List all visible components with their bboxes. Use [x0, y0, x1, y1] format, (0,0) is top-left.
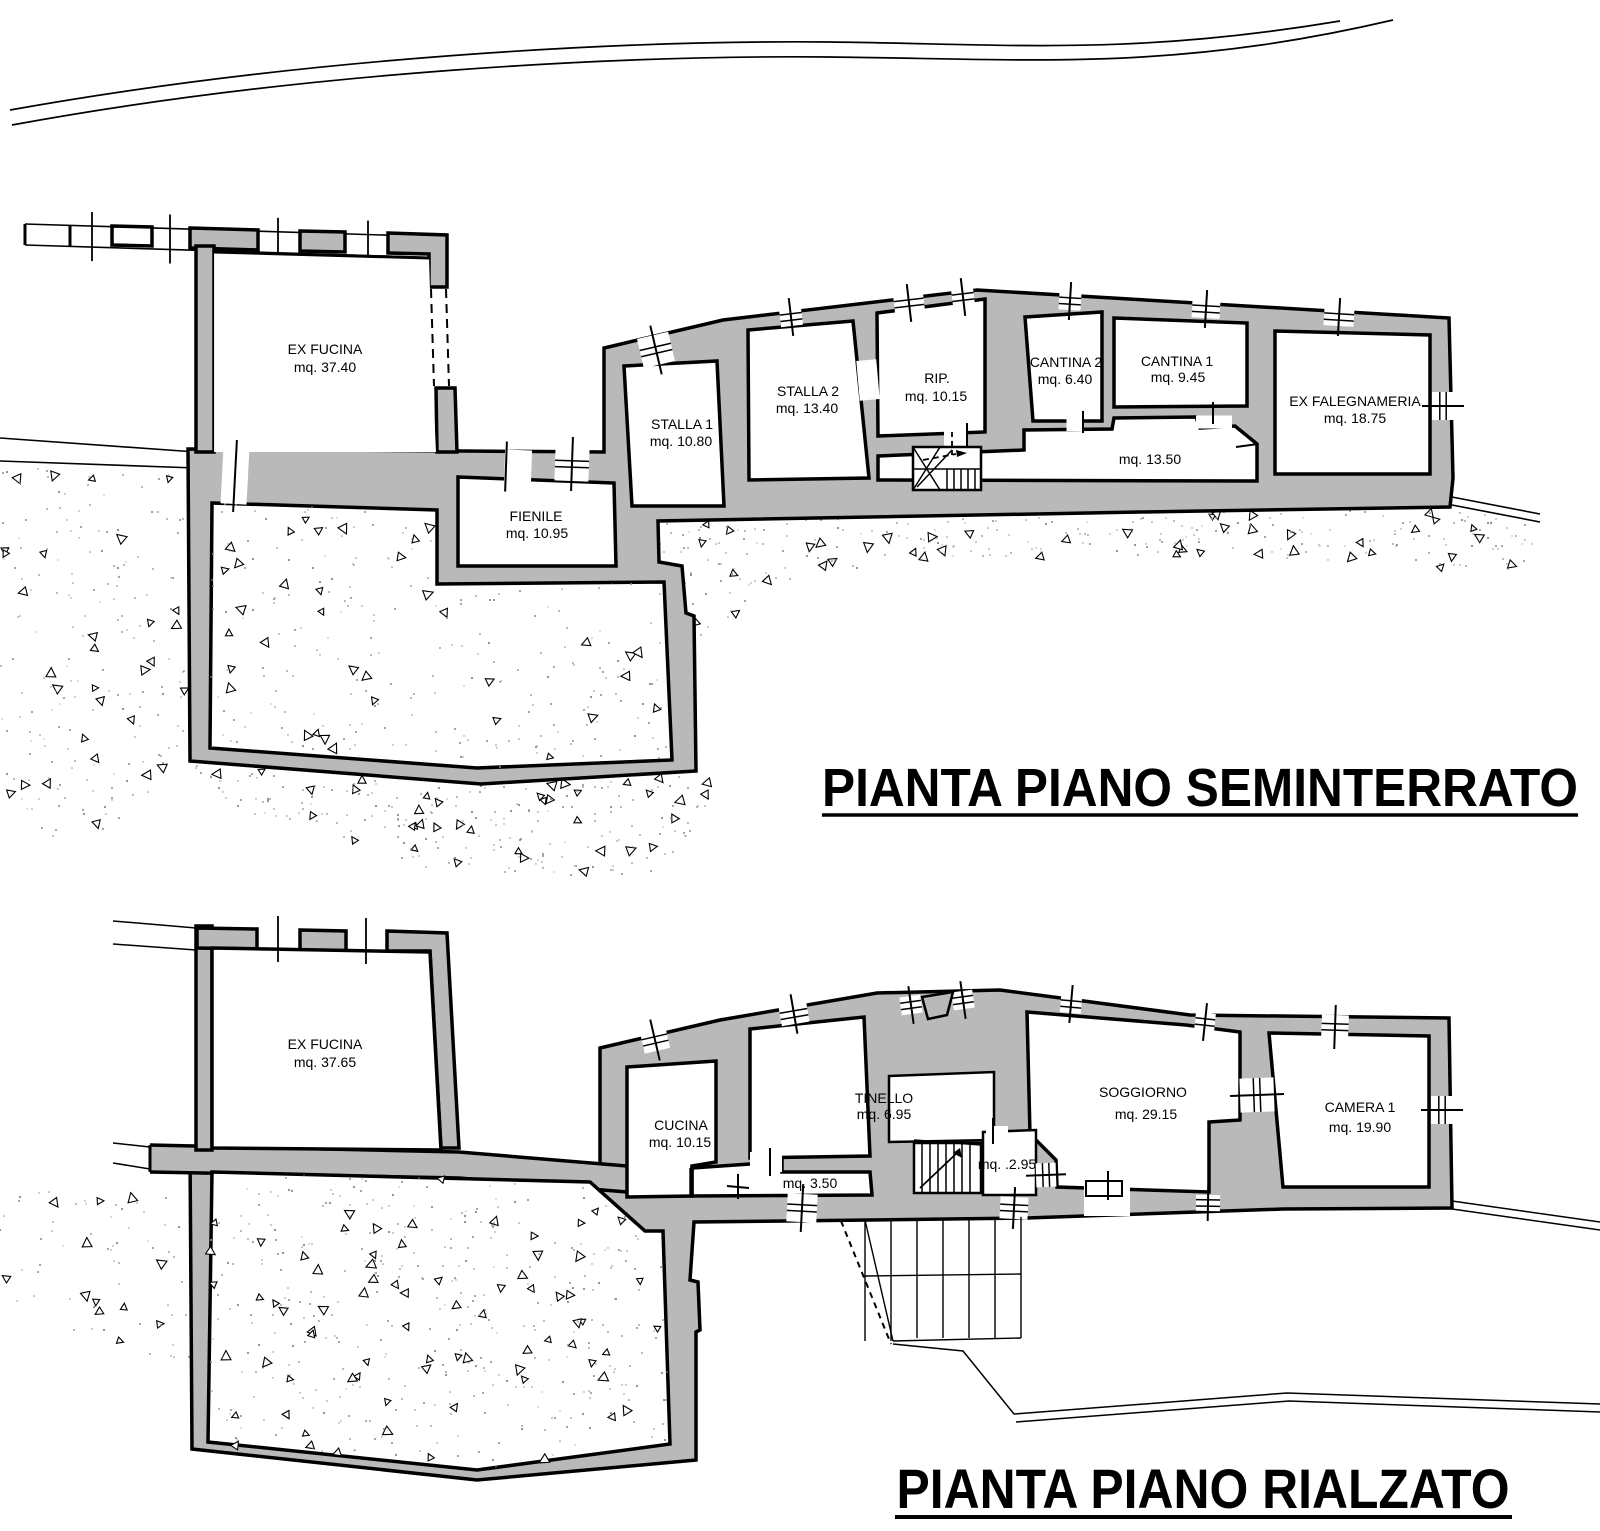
svg-text:mq. 37.65: mq. 37.65 — [294, 1054, 356, 1070]
svg-text:EX FUCINA: EX FUCINA — [288, 1036, 363, 1052]
svg-text:RIP.: RIP. — [924, 370, 949, 386]
svg-text:mq. 18.75: mq. 18.75 — [1324, 410, 1386, 426]
svg-text:mq. 10.95: mq. 10.95 — [506, 525, 568, 541]
svg-text:mq. 6.95: mq. 6.95 — [857, 1106, 912, 1122]
svg-text:CANTINA 1: CANTINA 1 — [1141, 353, 1214, 369]
svg-text:mq. 3.50: mq. 3.50 — [783, 1175, 838, 1191]
svg-text:mq. 13.50: mq. 13.50 — [1119, 451, 1181, 467]
svg-text:EX FUCINA: EX FUCINA — [288, 341, 363, 357]
svg-text:CAMERA 1: CAMERA 1 — [1325, 1099, 1396, 1115]
svg-text:PIANTA PIANO RIALZATO: PIANTA PIANO RIALZATO — [897, 1457, 1510, 1520]
svg-text:mq. 6.40: mq. 6.40 — [1038, 371, 1093, 387]
svg-text:PIANTA PIANO SEMINTERRATO: PIANTA PIANO SEMINTERRATO — [822, 758, 1578, 818]
svg-text:mq. 29.15: mq. 29.15 — [1115, 1106, 1177, 1122]
svg-text:FIENILE: FIENILE — [510, 508, 563, 524]
svg-text:STALLA 1: STALLA 1 — [651, 416, 713, 432]
svg-text:CUCINA: CUCINA — [654, 1117, 708, 1133]
svg-text:mq. .2.95: mq. .2.95 — [978, 1156, 1037, 1172]
svg-text:mq. 10.80: mq. 10.80 — [650, 433, 712, 449]
svg-text:mq. 37.40: mq. 37.40 — [294, 359, 356, 375]
svg-text:mq. 10.15: mq. 10.15 — [905, 388, 967, 404]
svg-text:mq. 9.45: mq. 9.45 — [1151, 369, 1206, 385]
svg-text:mq. 13.40: mq. 13.40 — [776, 400, 838, 416]
svg-text:TINELLO: TINELLO — [855, 1090, 913, 1106]
svg-text:mq. 10.15: mq. 10.15 — [649, 1134, 711, 1150]
svg-text:STALLA 2: STALLA 2 — [777, 383, 839, 399]
svg-text:EX FALEGNAMERIA: EX FALEGNAMERIA — [1289, 393, 1421, 409]
svg-text:CANTINA 2: CANTINA 2 — [1030, 354, 1103, 370]
svg-text:mq. 19.90: mq. 19.90 — [1329, 1119, 1391, 1135]
svg-text:SOGGIORNO: SOGGIORNO — [1099, 1084, 1187, 1100]
